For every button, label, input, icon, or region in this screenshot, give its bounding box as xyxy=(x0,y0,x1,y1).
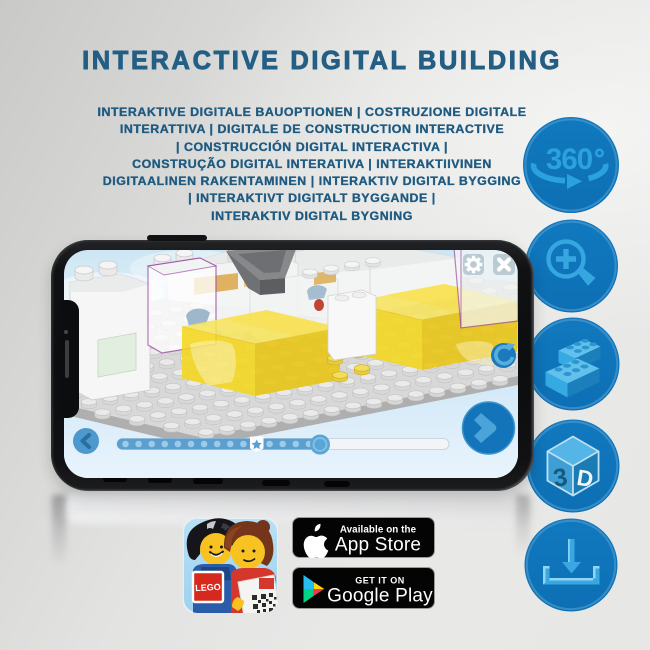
svg-text:LEGO: LEGO xyxy=(195,582,221,593)
svg-text:Google Play: Google Play xyxy=(327,586,433,607)
svg-text:GET IT ON: GET IT ON xyxy=(355,576,405,586)
svg-text:App Store: App Store xyxy=(335,535,421,556)
svg-text:360: 360 xyxy=(546,143,593,176)
